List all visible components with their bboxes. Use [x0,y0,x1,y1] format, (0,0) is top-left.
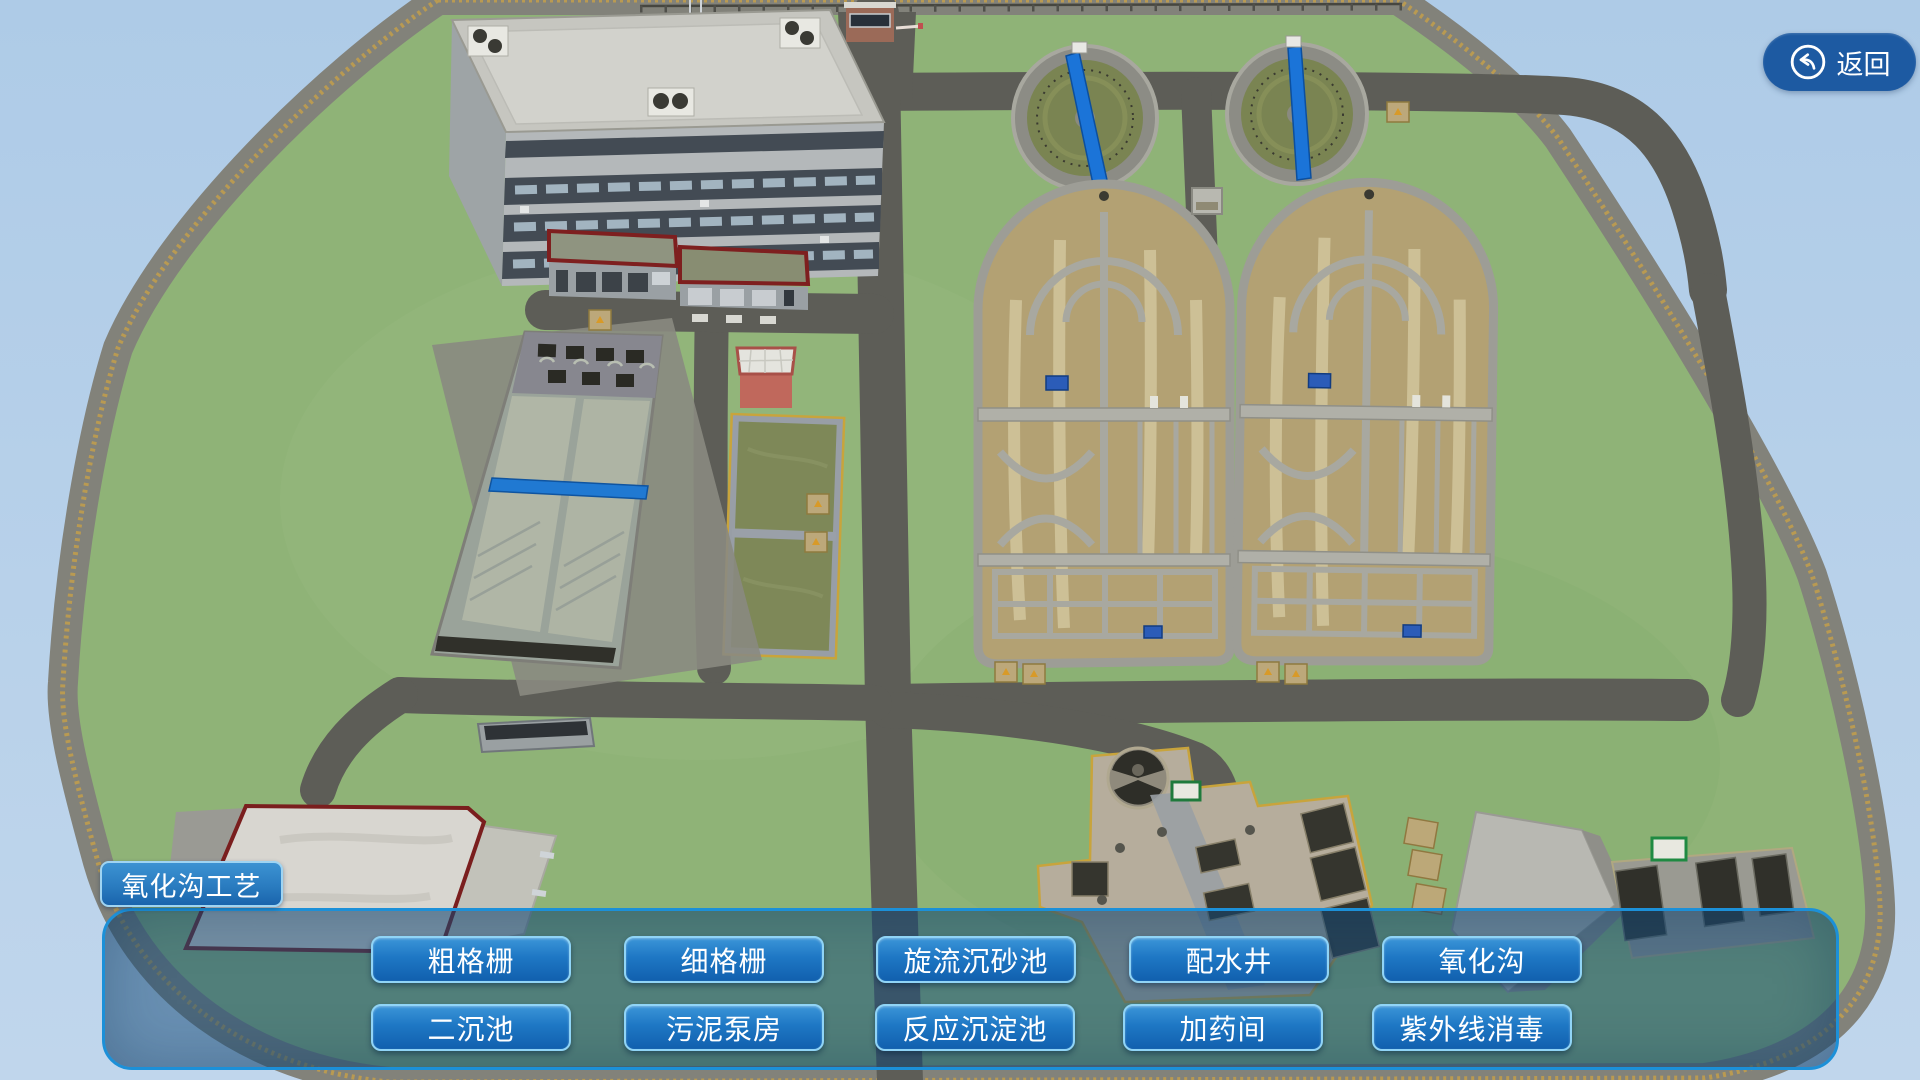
reaction-sedimentation-button[interactable]: 反应沉淀池 [875,1004,1075,1051]
back-button[interactable]: 返回 [1763,33,1916,91]
uv-disinfection-button[interactable]: 紫外线消毒 [1372,1004,1572,1051]
inter-ditch-hut [1192,188,1222,214]
control-sign [1652,838,1686,860]
coarse-screen-button[interactable]: 粗格栅 [371,936,571,983]
return-arrow-icon [1789,43,1827,81]
equipment-pad [1387,102,1409,122]
oxidation-ditch-1[interactable] [978,184,1230,664]
wastewater-plant-3d-app: 返回 氧化沟工艺 粗格栅 细格栅 旋流沉砂池 配水井 氧化沟 二沉池 污泥泵房 … [0,0,1920,1080]
circular-clarifier-1[interactable] [1013,42,1157,190]
oxidation-ditch-button[interactable]: 氧化沟 [1382,936,1582,983]
fine-screen-button[interactable]: 细格栅 [624,936,824,983]
back-button-label: 返回 [1837,43,1891,82]
vortex-grit-chamber-button[interactable]: 旋流沉砂池 [876,936,1076,983]
workshop-building-1[interactable] [549,231,677,300]
control-sign [1172,782,1200,800]
process-title-badge: 氧化沟工艺 [100,861,283,907]
distribution-well-button[interactable]: 配水井 [1129,936,1329,983]
oxidation-ditch-2[interactable] [1237,181,1496,664]
sludge-pump-shed[interactable] [478,718,594,752]
secondary-clarifier-button[interactable]: 二沉池 [371,1004,571,1051]
small-square-building[interactable] [737,348,795,408]
sludge-pump-house-button[interactable]: 污泥泵房 [624,1004,824,1051]
dosing-room-button[interactable]: 加药间 [1123,1004,1323,1051]
